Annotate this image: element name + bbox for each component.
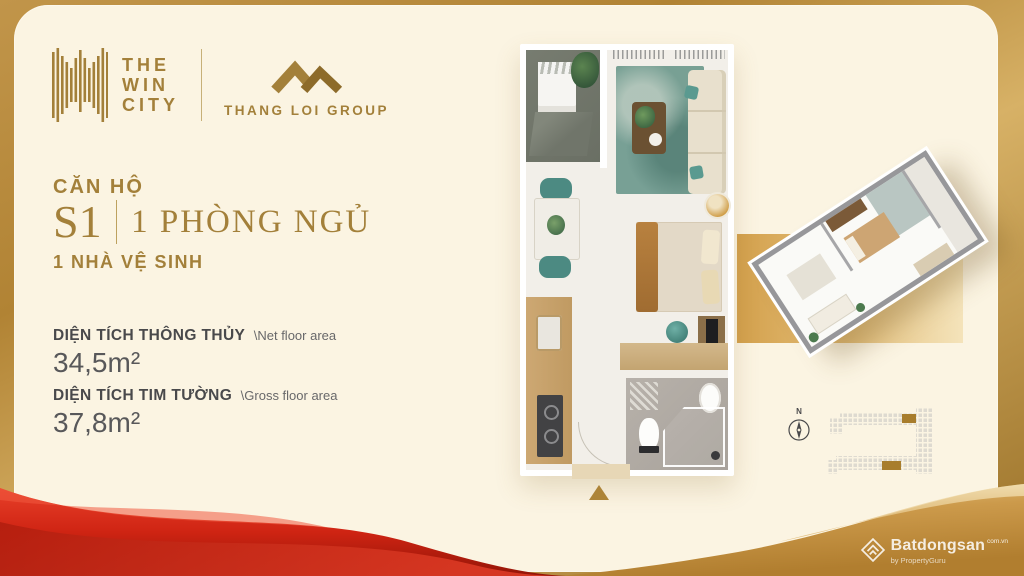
balcony (526, 50, 600, 162)
batdongsan-logo-icon (861, 538, 885, 562)
area-info: DIỆN TÍCH THÔNG THỦY \Net floor area 34,… (53, 327, 337, 447)
washing-machine (538, 74, 576, 116)
bed (636, 222, 722, 312)
kitchen-counter (526, 297, 572, 464)
entry-doormat (572, 464, 630, 479)
gross-area-sublabel: \Gross floor area (241, 388, 338, 403)
bathroom (626, 378, 728, 470)
iso-kitchen (913, 243, 954, 277)
highlighted-unit-top (902, 414, 916, 423)
floor-plan (520, 44, 734, 476)
isometric-3d-unit (762, 148, 972, 353)
thang-loi-wordmark: THANG LOI GROUP (224, 103, 389, 118)
compass-icon: N (789, 407, 809, 440)
unit-bathrooms: 1 NHÀ VỆ SINH (53, 252, 204, 273)
sofa-pillow (684, 85, 699, 100)
teal-stool (666, 321, 688, 343)
watermark: Batdongsan com.vn by PropertyGuru (861, 538, 1008, 565)
win-city-line: WIN (122, 75, 179, 95)
cooktop (537, 395, 563, 457)
highlighted-unit-bottom (882, 461, 901, 470)
gross-area-value: 37,8m² (53, 407, 337, 439)
dining-chair (539, 256, 571, 278)
sofa-cushion-line (688, 152, 726, 154)
gold-pouf (706, 194, 729, 217)
win-city-line: THE (122, 55, 179, 75)
kitchen-sink (536, 315, 562, 351)
svg-text:N: N (796, 407, 802, 416)
shower-drain (711, 451, 720, 460)
dining-table-plant (547, 215, 565, 235)
coffee-table (632, 102, 666, 154)
watermark-subtitle: by PropertyGuru (891, 557, 1008, 565)
bed-pillow (701, 269, 720, 304)
unit-code: S1 (53, 198, 102, 246)
win-city-logo-icon (52, 46, 108, 124)
iso-plant (854, 301, 866, 313)
thang-loi-logo: THANG LOI GROUP (224, 53, 389, 118)
isometric-3d-shell (751, 150, 984, 354)
gross-area-label: DIỆN TÍCH TIM TƯỜNG (53, 387, 232, 404)
desk-counter (620, 343, 728, 370)
balcony-mat (529, 112, 593, 156)
iso-sofa (808, 294, 857, 335)
balcony-plant (571, 52, 599, 88)
site-key-plan: N (778, 398, 968, 493)
unit-title-row: S1 1 PHÒNG NGỦ (53, 198, 371, 246)
coffee-table-tray (649, 133, 662, 146)
tv (706, 319, 718, 346)
win-city-line: CITY (122, 95, 179, 115)
win-city-wordmark: THE WIN CITY (122, 55, 179, 115)
balcony-wall (600, 50, 607, 168)
thang-loi-logo-icon (270, 59, 344, 95)
header-logos: THE WIN CITY THANG LOI GROUP (52, 46, 389, 124)
watermark-domain: com.vn (987, 539, 1008, 546)
bed-pillow (701, 229, 720, 264)
net-area-label: DIỆN TÍCH THÔNG THỦY (53, 327, 245, 344)
dining-table (534, 198, 580, 260)
unit-title-divider (116, 200, 118, 244)
gross-area-label-row: DIỆN TÍCH TIM TƯỜNG \Gross floor area (53, 387, 337, 405)
sofa-cushion-line (688, 110, 726, 112)
iso-bed-pillow (845, 236, 866, 261)
net-area-value: 34,5m² (53, 347, 337, 379)
cooktop-burner (544, 429, 559, 444)
siteplan-buildings (828, 408, 932, 474)
sofa (688, 70, 726, 194)
cooktop-burner (544, 405, 559, 420)
watermark-brand: Batdongsan (891, 538, 985, 554)
sofa-pillow (689, 165, 704, 180)
net-area-sublabel: \Net floor area (254, 328, 336, 343)
win-city-logo: THE WIN CITY (52, 46, 179, 124)
dining-chair (540, 178, 572, 200)
curtain-left (613, 50, 667, 59)
logo-divider (201, 49, 202, 121)
toilet-tank (639, 446, 659, 453)
curtain-right (675, 50, 725, 59)
entrance-arrow-icon (589, 485, 609, 500)
unit-bedrooms: 1 PHÒNG NGỦ (131, 204, 371, 241)
bathroom-towel (630, 382, 658, 410)
coffee-table-plant (635, 106, 655, 128)
net-area-label-row: DIỆN TÍCH THÔNG THỦY \Net floor area (53, 327, 337, 345)
bed-blanket (636, 222, 658, 312)
iso-rug (786, 253, 836, 300)
